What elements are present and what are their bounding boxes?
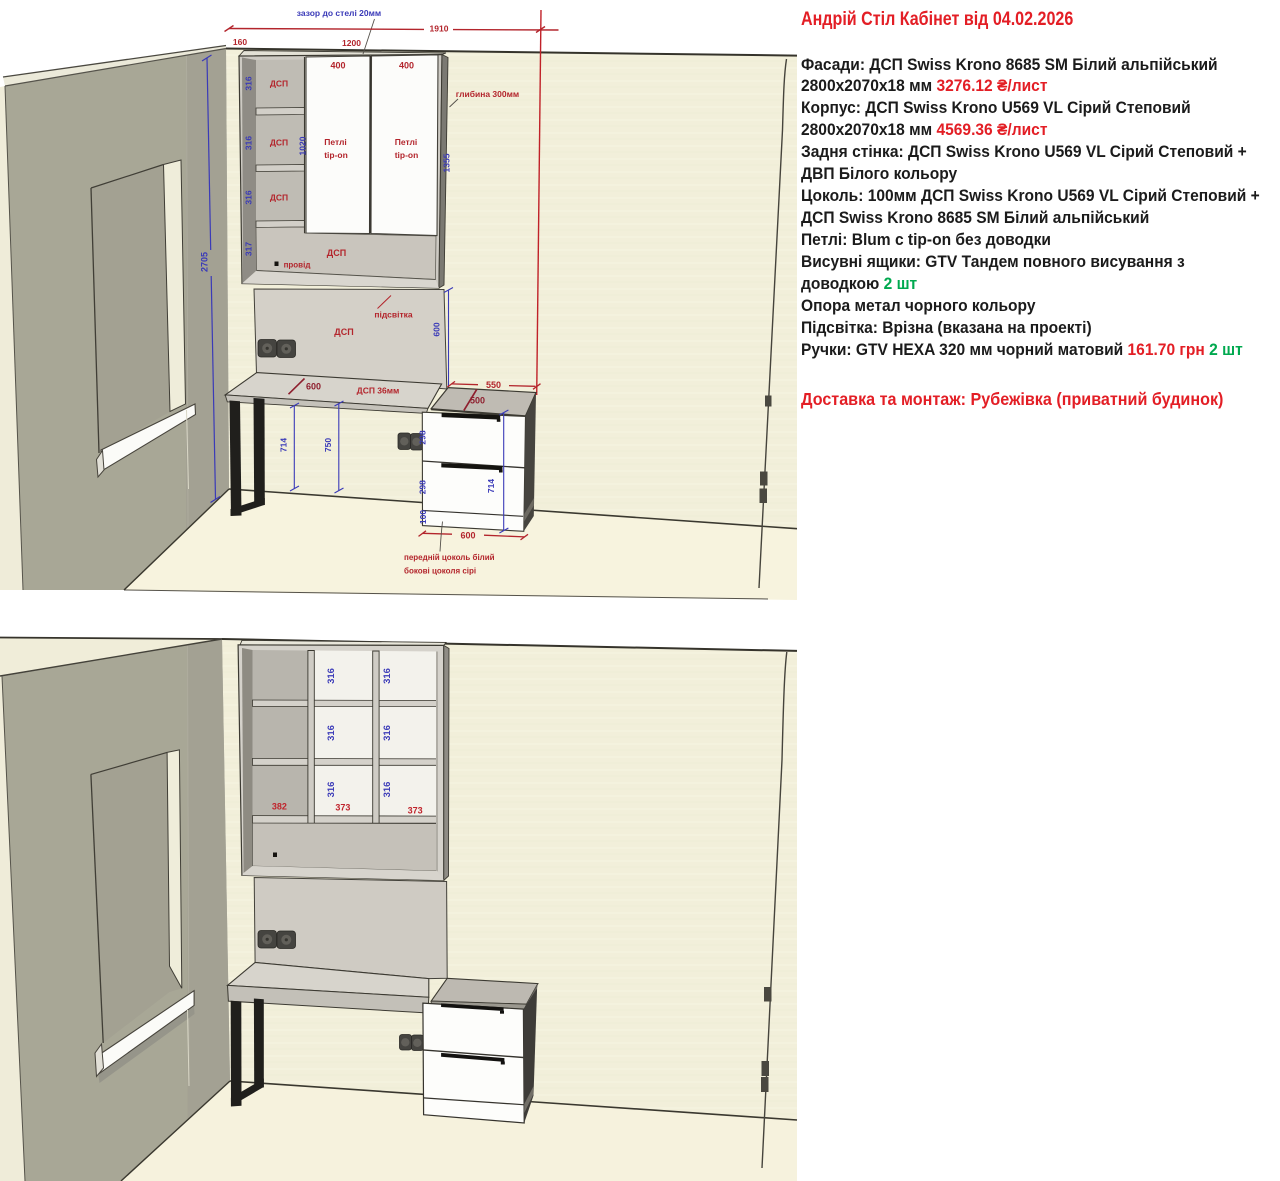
svg-text:316: 316 bbox=[244, 76, 254, 90]
svg-text:400: 400 bbox=[330, 61, 345, 71]
svg-text:316: 316 bbox=[326, 725, 337, 741]
svg-text:підсвітка: підсвітка bbox=[374, 310, 413, 320]
svg-text:298: 298 bbox=[418, 430, 428, 444]
svg-text:100: 100 bbox=[418, 510, 428, 524]
svg-text:передній цоколь білий: передній цоколь білий bbox=[404, 553, 495, 562]
svg-text:1200: 1200 bbox=[342, 38, 361, 48]
svg-text:глибина 300мм: глибина 300мм bbox=[456, 89, 519, 99]
svg-text:316: 316 bbox=[244, 190, 254, 204]
svg-text:382: 382 bbox=[272, 802, 287, 812]
svg-text:500: 500 bbox=[470, 396, 485, 406]
svg-text:316: 316 bbox=[244, 136, 254, 150]
svg-text:316: 316 bbox=[326, 668, 337, 684]
svg-text:400: 400 bbox=[399, 61, 414, 71]
svg-text:Петлі: Петлі bbox=[395, 137, 418, 147]
svg-text:1355: 1355 bbox=[442, 153, 452, 172]
svg-text:714: 714 bbox=[279, 438, 289, 452]
svg-text:316: 316 bbox=[382, 782, 393, 798]
svg-text:373: 373 bbox=[408, 806, 423, 816]
svg-text:316: 316 bbox=[326, 782, 337, 798]
svg-text:провід: провід bbox=[284, 261, 311, 270]
svg-text:298: 298 bbox=[418, 480, 428, 494]
svg-text:бокові цоколя сірі: бокові цоколя сірі bbox=[404, 567, 476, 576]
svg-text:tip-on: tip-on bbox=[395, 150, 419, 160]
svg-text:317: 317 bbox=[244, 242, 254, 256]
svg-text:550: 550 bbox=[486, 380, 501, 390]
svg-text:750: 750 bbox=[323, 438, 333, 452]
svg-text:160: 160 bbox=[233, 37, 247, 47]
svg-text:600: 600 bbox=[306, 382, 321, 392]
svg-text:2705: 2705 bbox=[200, 252, 210, 272]
svg-text:ДСП: ДСП bbox=[327, 248, 346, 258]
svg-text:ДСП: ДСП bbox=[270, 193, 288, 203]
svg-text:316: 316 bbox=[382, 725, 393, 741]
svg-text:ДСП 36мм: ДСП 36мм bbox=[357, 386, 400, 396]
svg-text:316: 316 bbox=[382, 668, 393, 684]
svg-text:1020: 1020 bbox=[298, 136, 308, 155]
svg-text:600: 600 bbox=[460, 530, 475, 540]
svg-text:714: 714 bbox=[486, 479, 496, 493]
svg-text:ДСП: ДСП bbox=[270, 79, 288, 89]
svg-text:ДСП: ДСП bbox=[334, 327, 353, 337]
svg-text:tip-on: tip-on bbox=[324, 150, 348, 160]
svg-text:зазор до стелі 20мм: зазор до стелі 20мм bbox=[297, 8, 381, 18]
svg-text:1910: 1910 bbox=[430, 24, 449, 34]
svg-text:373: 373 bbox=[335, 803, 350, 813]
svg-text:ДСП: ДСП bbox=[270, 138, 288, 148]
svg-text:600: 600 bbox=[432, 322, 442, 336]
svg-text:Петлі: Петлі bbox=[324, 137, 347, 147]
